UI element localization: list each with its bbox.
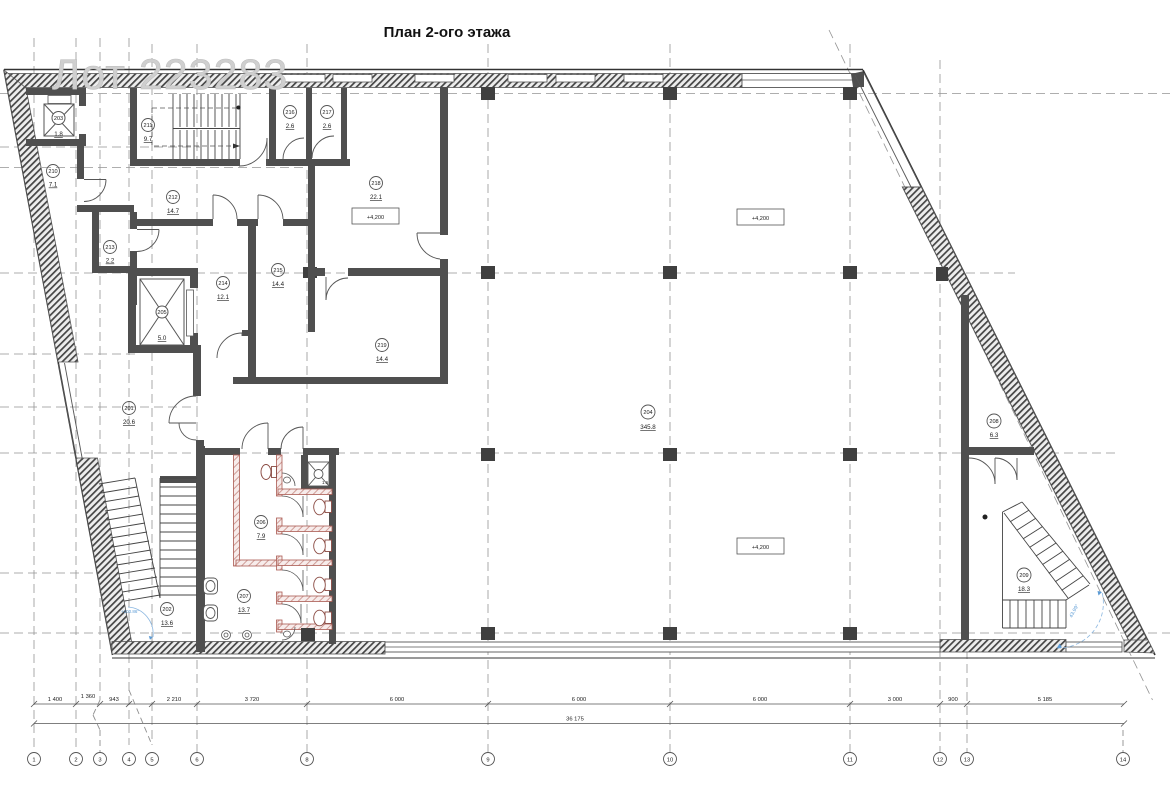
svg-text:204: 204: [643, 410, 652, 416]
svg-text:12: 12: [937, 758, 943, 764]
svg-text:6.3: 6.3: [990, 432, 999, 439]
svg-text:7.1: 7.1: [49, 182, 58, 189]
svg-text:22.1: 22.1: [370, 194, 383, 201]
svg-text:36 175: 36 175: [566, 717, 584, 723]
svg-text:203: 203: [54, 116, 63, 122]
svg-text:345.8: 345.8: [640, 424, 656, 431]
svg-text:900: 900: [948, 697, 958, 703]
svg-text:13.6: 13.6: [161, 620, 174, 627]
svg-text:1: 1: [32, 758, 35, 764]
svg-text:5.0: 5.0: [158, 335, 167, 342]
svg-text:6 000: 6 000: [753, 697, 768, 703]
svg-text:211: 211: [144, 123, 153, 129]
svg-text:205: 205: [157, 310, 166, 316]
svg-text:+4,200: +4,200: [752, 545, 769, 551]
svg-text:207: 207: [239, 594, 248, 600]
svg-text:2: 2: [74, 758, 77, 764]
svg-text:14: 14: [1120, 758, 1127, 764]
svg-text:215: 215: [273, 268, 282, 274]
svg-text:20.6: 20.6: [123, 419, 136, 426]
svg-text:2 210: 2 210: [167, 697, 182, 703]
svg-text:Лот 223283: Лот 223283: [52, 51, 288, 99]
svg-text:10: 10: [667, 758, 673, 764]
svg-text:6 000: 6 000: [572, 697, 587, 703]
svg-text:6 000: 6 000: [390, 697, 405, 703]
svg-text:212: 212: [168, 195, 177, 201]
svg-text:14.4: 14.4: [272, 281, 285, 288]
svg-text:3: 3: [98, 758, 101, 764]
svg-text:План 2-ого этажа: План 2-ого этажа: [384, 24, 511, 41]
svg-text:14.4: 14.4: [376, 356, 389, 363]
svg-text:3 720: 3 720: [245, 697, 260, 703]
svg-text:2.6: 2.6: [323, 123, 332, 130]
svg-text:943: 943: [109, 697, 119, 703]
svg-text:214: 214: [218, 281, 227, 287]
svg-text:201: 201: [124, 406, 133, 412]
svg-text:13: 13: [964, 758, 970, 764]
svg-text:5: 5: [150, 758, 153, 764]
svg-text:+4,200: +4,200: [367, 215, 384, 221]
svg-text:219: 219: [377, 343, 386, 349]
svg-text:9: 9: [486, 758, 489, 764]
svg-text:218: 218: [371, 181, 380, 187]
svg-text:13.7: 13.7: [238, 607, 251, 614]
svg-text:206: 206: [256, 520, 265, 526]
svg-text:2.2: 2.2: [106, 258, 115, 265]
svg-text:11: 11: [847, 758, 853, 764]
svg-text:18.3: 18.3: [1018, 586, 1031, 593]
svg-text:1 360: 1 360: [81, 694, 96, 700]
svg-text:12.1: 12.1: [217, 294, 230, 301]
svg-text:1.8: 1.8: [54, 131, 63, 138]
svg-text:210: 210: [48, 169, 57, 175]
svg-text:209: 209: [1019, 573, 1028, 579]
svg-text:216: 216: [285, 110, 294, 116]
svg-text:202: 202: [162, 607, 171, 613]
svg-text:14.7: 14.7: [167, 208, 180, 215]
svg-text:213: 213: [105, 245, 114, 251]
svg-text:1.6: 1.6: [322, 480, 329, 485]
svg-text:2.6: 2.6: [286, 123, 295, 130]
svg-text:+4,200: +4,200: [752, 216, 769, 222]
svg-text:208: 208: [989, 419, 998, 425]
svg-text:5 185: 5 185: [1038, 697, 1053, 703]
svg-text:3 000: 3 000: [888, 697, 903, 703]
svg-text:9.7: 9.7: [144, 136, 153, 143]
svg-text:7.9: 7.9: [257, 533, 266, 540]
svg-text:1 400: 1 400: [48, 697, 63, 703]
svg-text:+100.86°: +100.86°: [121, 609, 139, 614]
svg-text:217: 217: [322, 110, 331, 116]
svg-text:8: 8: [305, 758, 308, 764]
svg-text:6: 6: [195, 758, 198, 764]
